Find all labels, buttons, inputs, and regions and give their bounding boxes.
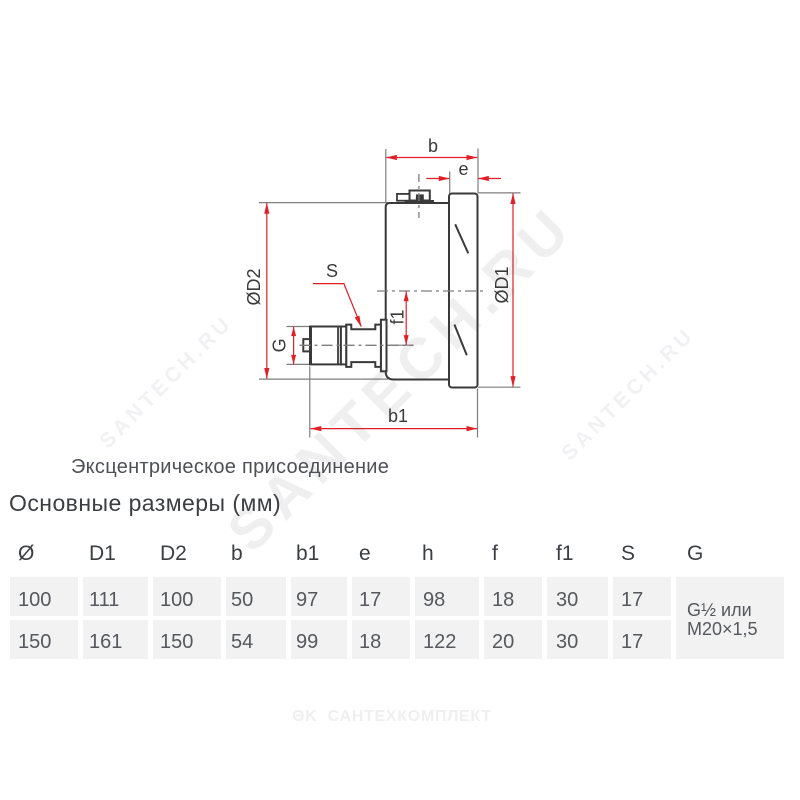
svg-text:f1: f1 (387, 309, 407, 324)
svg-text:G: G (270, 338, 290, 352)
svg-text:b: b (428, 136, 438, 156)
svg-text:ØD2: ØD2 (244, 268, 264, 305)
svg-text:e: e (459, 159, 469, 179)
svg-text:S: S (326, 261, 338, 281)
